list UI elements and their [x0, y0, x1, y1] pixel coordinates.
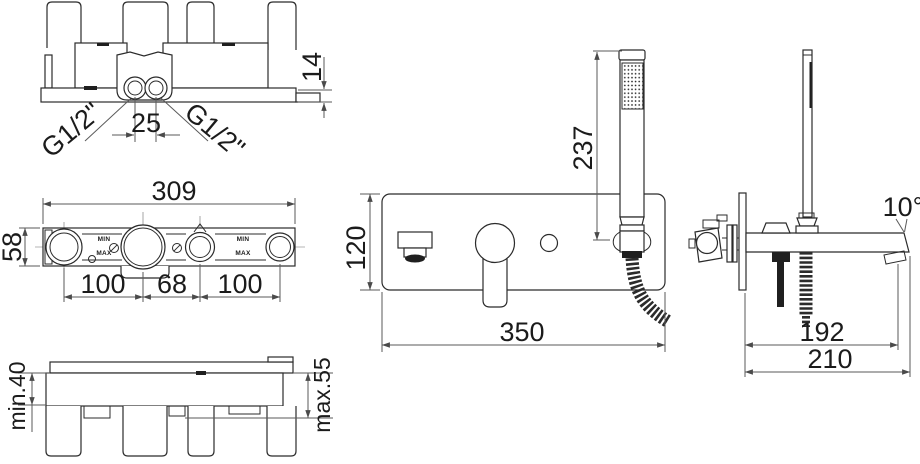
leg-outline	[123, 2, 168, 44]
connector-block	[229, 406, 260, 414]
dim-body-height: 58	[0, 232, 27, 262]
body-notch	[196, 371, 206, 375]
dim-reach-total: 210	[807, 344, 852, 374]
holder-side-cone	[797, 218, 817, 226]
dim-handshower-height: 237	[568, 125, 598, 170]
technical-drawing-canvas: 25 14 G1/2" G1/2"	[0, 0, 920, 464]
spout-side	[746, 233, 909, 252]
handle-knob	[476, 224, 515, 263]
leg-outline	[46, 406, 81, 456]
dim-spout-angle: 10°	[883, 192, 920, 222]
connector-block	[84, 406, 110, 418]
valve-circle	[46, 229, 82, 265]
diverter-button	[541, 235, 558, 252]
plate-notch	[84, 86, 97, 90]
diverter-knob-side	[762, 223, 790, 233]
wall-plate-tab	[268, 357, 293, 362]
connector-block	[169, 406, 185, 416]
port-circle-right	[145, 77, 167, 99]
handle-lever	[483, 258, 507, 307]
supply-port	[697, 233, 718, 254]
view-mixer-front: 120 237 350	[341, 50, 669, 352]
view-body-front: MIN MAX MIN MAX 309 58 100 68 100	[0, 176, 305, 302]
mount-bracket	[733, 225, 737, 262]
lever-side-horizontal	[772, 252, 790, 262]
hose-collar	[622, 251, 642, 258]
mount-nub	[689, 239, 695, 248]
aerator-side	[884, 251, 906, 264]
view-body-top: 25 14 G1/2" G1/2"	[35, 2, 332, 163]
body-block	[163, 43, 268, 88]
wall-plate-side	[739, 193, 746, 290]
port-circle-left	[124, 77, 146, 99]
mark-max-right: MAX	[235, 250, 251, 257]
block-notch	[222, 43, 235, 46]
dim-plate-width: 350	[499, 317, 544, 347]
cartridge-circle	[121, 225, 165, 269]
handshower-ring	[620, 225, 644, 231]
label-port-right: G1/2"	[179, 97, 250, 164]
lever-side-vertical	[777, 262, 784, 307]
dim-reach-aerator: 192	[799, 317, 844, 347]
dim-port-spacing: 25	[131, 108, 161, 138]
wall-plate	[50, 362, 293, 373]
view-mixer-side: 10° 192 210	[689, 50, 920, 377]
leg-outline	[187, 2, 214, 44]
handshower-sprayface	[622, 63, 643, 109]
handshower-nut	[620, 217, 644, 225]
mark-max-left: MAX	[96, 250, 112, 257]
holder-cup	[620, 231, 644, 252]
dim-span-right: 100	[217, 269, 262, 299]
block-notch	[97, 43, 109, 46]
spout-aerator	[405, 255, 425, 263]
dim-span-center: 68	[157, 269, 187, 299]
leg-outline	[267, 406, 296, 456]
wall-plate-step	[296, 93, 320, 102]
dim-span-left: 100	[80, 269, 125, 299]
mount-bracket	[727, 225, 732, 262]
body-tab	[45, 55, 52, 88]
handshower-cap	[619, 50, 645, 60]
dim-plate-thickness: 14	[297, 52, 327, 82]
holder-side-cup	[796, 226, 818, 233]
outlet-circle	[266, 233, 294, 261]
leg-outline	[47, 2, 81, 48]
bath-mixer-installation-drawing: 25 14 G1/2" G1/2"	[0, 0, 920, 464]
dim-depth-max: max.55	[309, 357, 335, 432]
dim-plate-height: 120	[341, 225, 371, 270]
leg-outline	[188, 406, 214, 456]
dim-overall-width: 309	[151, 176, 196, 206]
spout-front	[398, 232, 432, 248]
leg-outline	[123, 406, 167, 456]
body-block	[46, 373, 283, 406]
leg-outline	[268, 2, 296, 50]
mark-min-left: MIN	[98, 236, 111, 243]
mark-min-right: MIN	[237, 236, 250, 243]
dim-depth-min: min.40	[4, 361, 30, 430]
view-body-depth: min.40 max.55	[4, 357, 335, 456]
